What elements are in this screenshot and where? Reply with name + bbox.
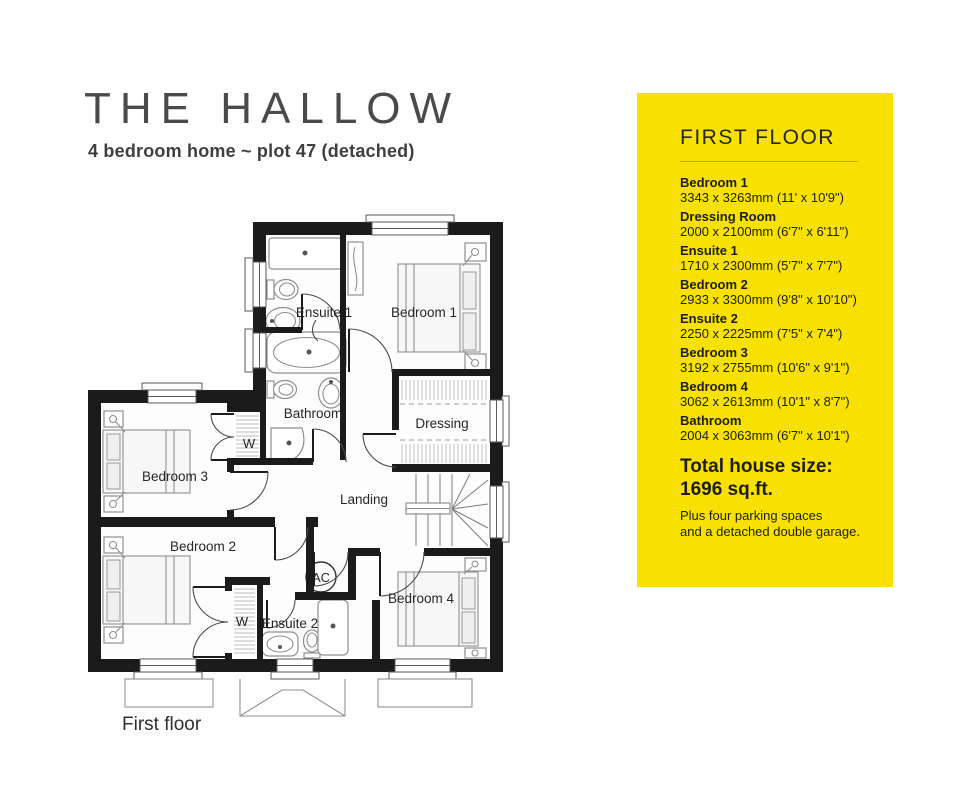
room-label-landing: Landing bbox=[340, 492, 388, 507]
room-spec-name: Bedroom 2 bbox=[680, 277, 867, 292]
plan-caption: First floor bbox=[122, 714, 201, 736]
shower-icon-ensuite2 bbox=[318, 600, 348, 655]
room-spec-dims: 2004 x 3063mm (6'7" x 10'1") bbox=[680, 428, 867, 443]
first-floor-panel: FIRST FLOOR Bedroom 1 3343 x 3263mm (11'… bbox=[637, 93, 893, 587]
sink-icon-bathroom bbox=[319, 378, 344, 408]
mirror-cupboard-icon bbox=[348, 242, 363, 295]
room-spec-name: Bedroom 1 bbox=[680, 175, 867, 190]
room-label-dressing: Dressing bbox=[415, 416, 468, 431]
shower-icon-ensuite1 bbox=[269, 238, 342, 269]
room-label-wardrobe2: W bbox=[236, 614, 249, 629]
room-label-bathroom: Bathroom bbox=[284, 406, 343, 421]
room-spec-dims: 3062 x 2613mm (10'1" x 8'7") bbox=[680, 394, 867, 409]
room-label-bedroom2: Bedroom 2 bbox=[170, 539, 236, 554]
room-spec-dims: 2933 x 3300mm (9'8" x 10'10") bbox=[680, 292, 867, 307]
total-size-label: Total house size: bbox=[680, 455, 867, 478]
panel-divider bbox=[680, 161, 858, 162]
room-label-ensuite2: Ensuite 2 bbox=[262, 616, 318, 631]
bed-icon-bedroom4 bbox=[398, 558, 486, 658]
room-spec-item: Bathroom 2004 x 3063mm (6'7" x 10'1") bbox=[680, 413, 867, 443]
room-label-wardrobe1: W bbox=[243, 436, 256, 451]
room-spec-dims: 3192 x 2755mm (10'6" x 9'1") bbox=[680, 360, 867, 375]
room-spec-name: Bathroom bbox=[680, 413, 867, 428]
room-label-bedroom4: Bedroom 4 bbox=[388, 591, 455, 606]
bathtub-icon bbox=[267, 332, 346, 373]
room-spec-name: Dressing Room bbox=[680, 209, 867, 224]
room-spec-item: Bedroom 3 3192 x 2755mm (10'6" x 9'1") bbox=[680, 345, 867, 375]
total-size-value: 1696 sq.ft. bbox=[680, 478, 867, 501]
room-spec-item: Dressing Room 2000 x 2100mm (6'7" x 6'11… bbox=[680, 209, 867, 239]
bay-window-outlines bbox=[125, 679, 472, 716]
room-spec-name: Ensuite 1 bbox=[680, 243, 867, 258]
room-label-ensuite1: Ensuite 1 bbox=[296, 305, 352, 320]
toilet-icon-bathroom bbox=[267, 381, 297, 399]
room-spec-item: Ensuite 1 1710 x 2300mm (5'7" x 7'7") bbox=[680, 243, 867, 273]
room-spec-item: Ensuite 2 2250 x 2225mm (7'5" x 7'4") bbox=[680, 311, 867, 341]
room-label-bedroom3: Bedroom 3 bbox=[142, 469, 208, 484]
room-spec-dims: 3343 x 3263mm (11' x 10'9") bbox=[680, 190, 867, 205]
room-spec-item: Bedroom 1 3343 x 3263mm (11' x 10'9") bbox=[680, 175, 867, 205]
brochure-page: THE HALLOW 4 bedroom home ~ plot 47 (det… bbox=[0, 0, 980, 799]
room-spec-dims: 1710 x 2300mm (5'7" x 7'7") bbox=[680, 258, 867, 273]
parking-note-line2: and a detached double garage. bbox=[680, 524, 867, 540]
room-spec-dims: 2000 x 2100mm (6'7" x 6'11") bbox=[680, 224, 867, 239]
room-spec-item: Bedroom 2 2933 x 3300mm (9'8" x 10'10") bbox=[680, 277, 867, 307]
parking-note: Plus four parking spaces and a detached … bbox=[680, 508, 867, 540]
room-spec-dims: 2250 x 2225mm (7'5" x 7'4") bbox=[680, 326, 867, 341]
room-label-bedroom1: Bedroom 1 bbox=[391, 305, 457, 320]
room-spec-name: Ensuite 2 bbox=[680, 311, 867, 326]
sink-icon-ensuite2 bbox=[262, 632, 298, 656]
panel-heading: FIRST FLOOR bbox=[680, 126, 867, 150]
parking-note-line1: Plus four parking spaces bbox=[680, 508, 867, 524]
toilet-icon-ensuite1 bbox=[267, 280, 298, 300]
room-spec-name: Bedroom 4 bbox=[680, 379, 867, 394]
room-spec-item: Bedroom 4 3062 x 2613mm (10'1" x 8'7") bbox=[680, 379, 867, 409]
room-spec-name: Bedroom 3 bbox=[680, 345, 867, 360]
